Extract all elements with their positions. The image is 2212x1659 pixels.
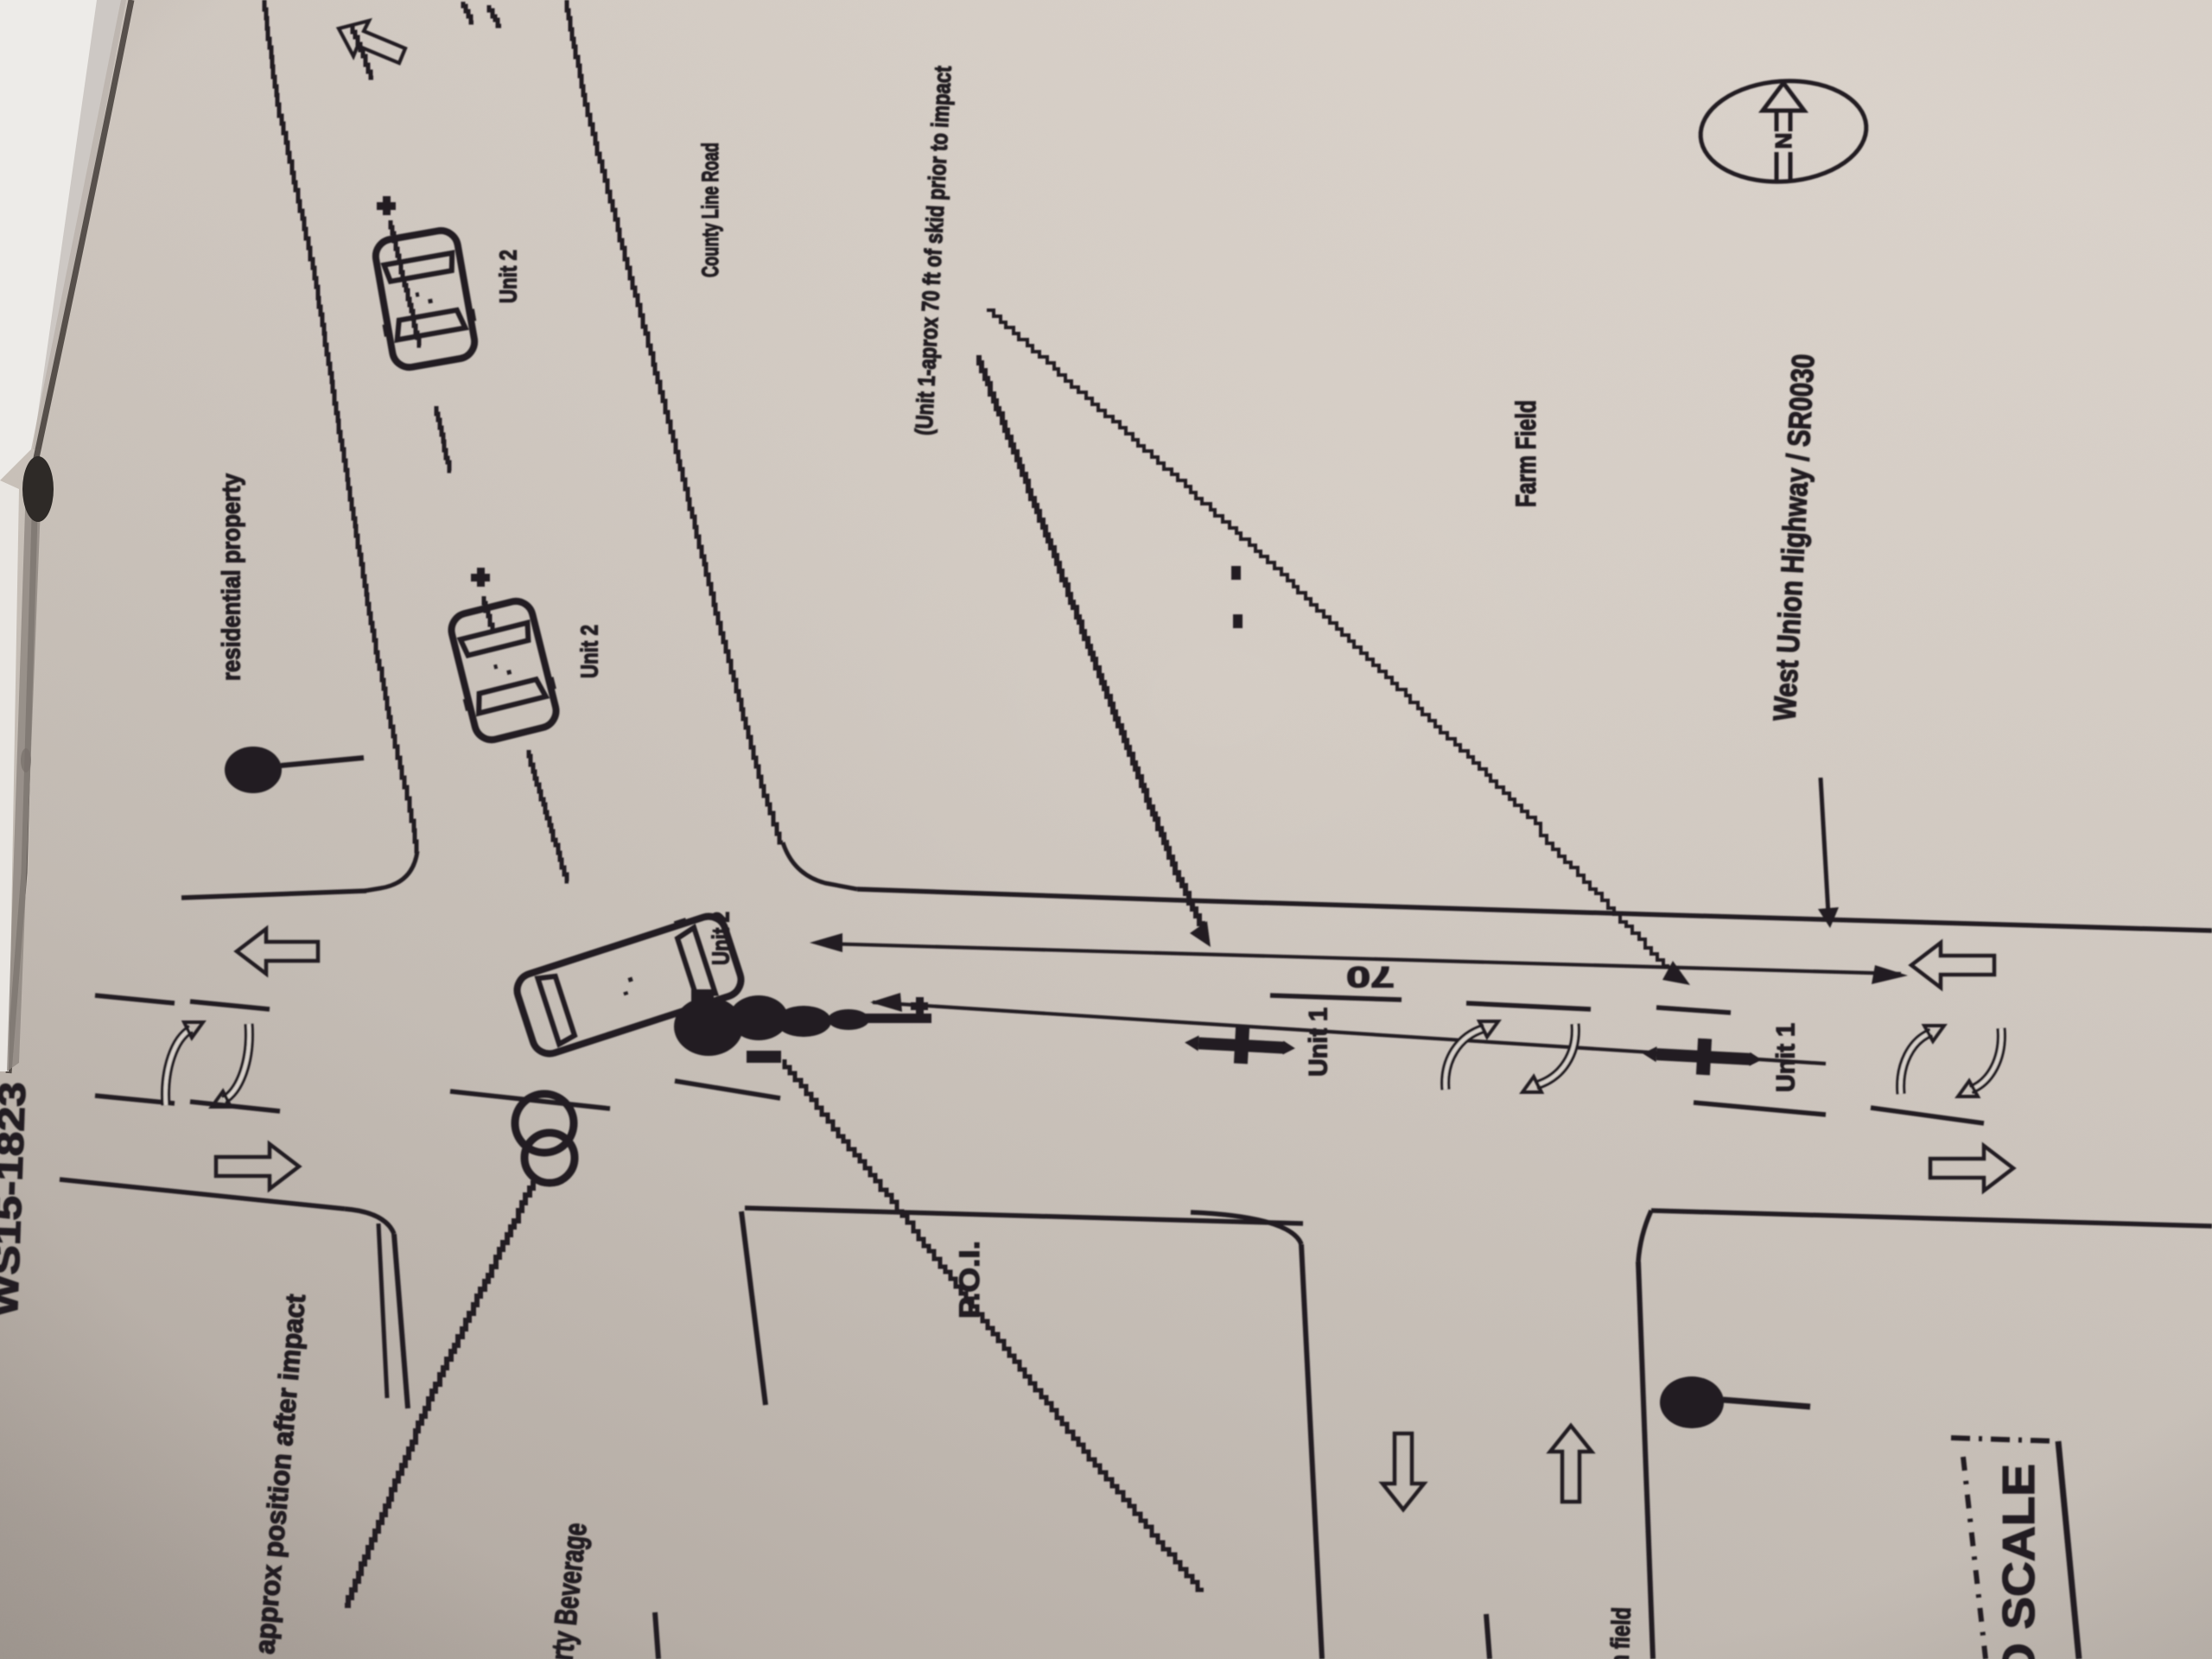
svg-text:Unit 2: Unit 2	[708, 912, 734, 965]
svg-text:Farm Field: Farm Field	[1510, 400, 1541, 507]
svg-text:P.O.I.: P.O.I.	[954, 1241, 985, 1319]
svg-text:Unit 1: Unit 1	[1305, 1007, 1333, 1077]
svg-text:70: 70	[1346, 960, 1395, 993]
svg-text:County Line Road: County Line Road	[697, 143, 723, 277]
svg-text:Unit 2: Unit 2	[495, 250, 522, 303]
svg-text:residential property: residential property	[218, 474, 246, 681]
svg-text:NOT TO SCALE: NOT TO SCALE	[1994, 1464, 2044, 1659]
svg-text:Unit 1: Unit 1	[1772, 1023, 1801, 1092]
svg-text:m field: m field	[1605, 1606, 1637, 1659]
svg-text:Unit 2: Unit 2	[576, 625, 603, 678]
svg-text:N: N	[1770, 133, 1796, 149]
